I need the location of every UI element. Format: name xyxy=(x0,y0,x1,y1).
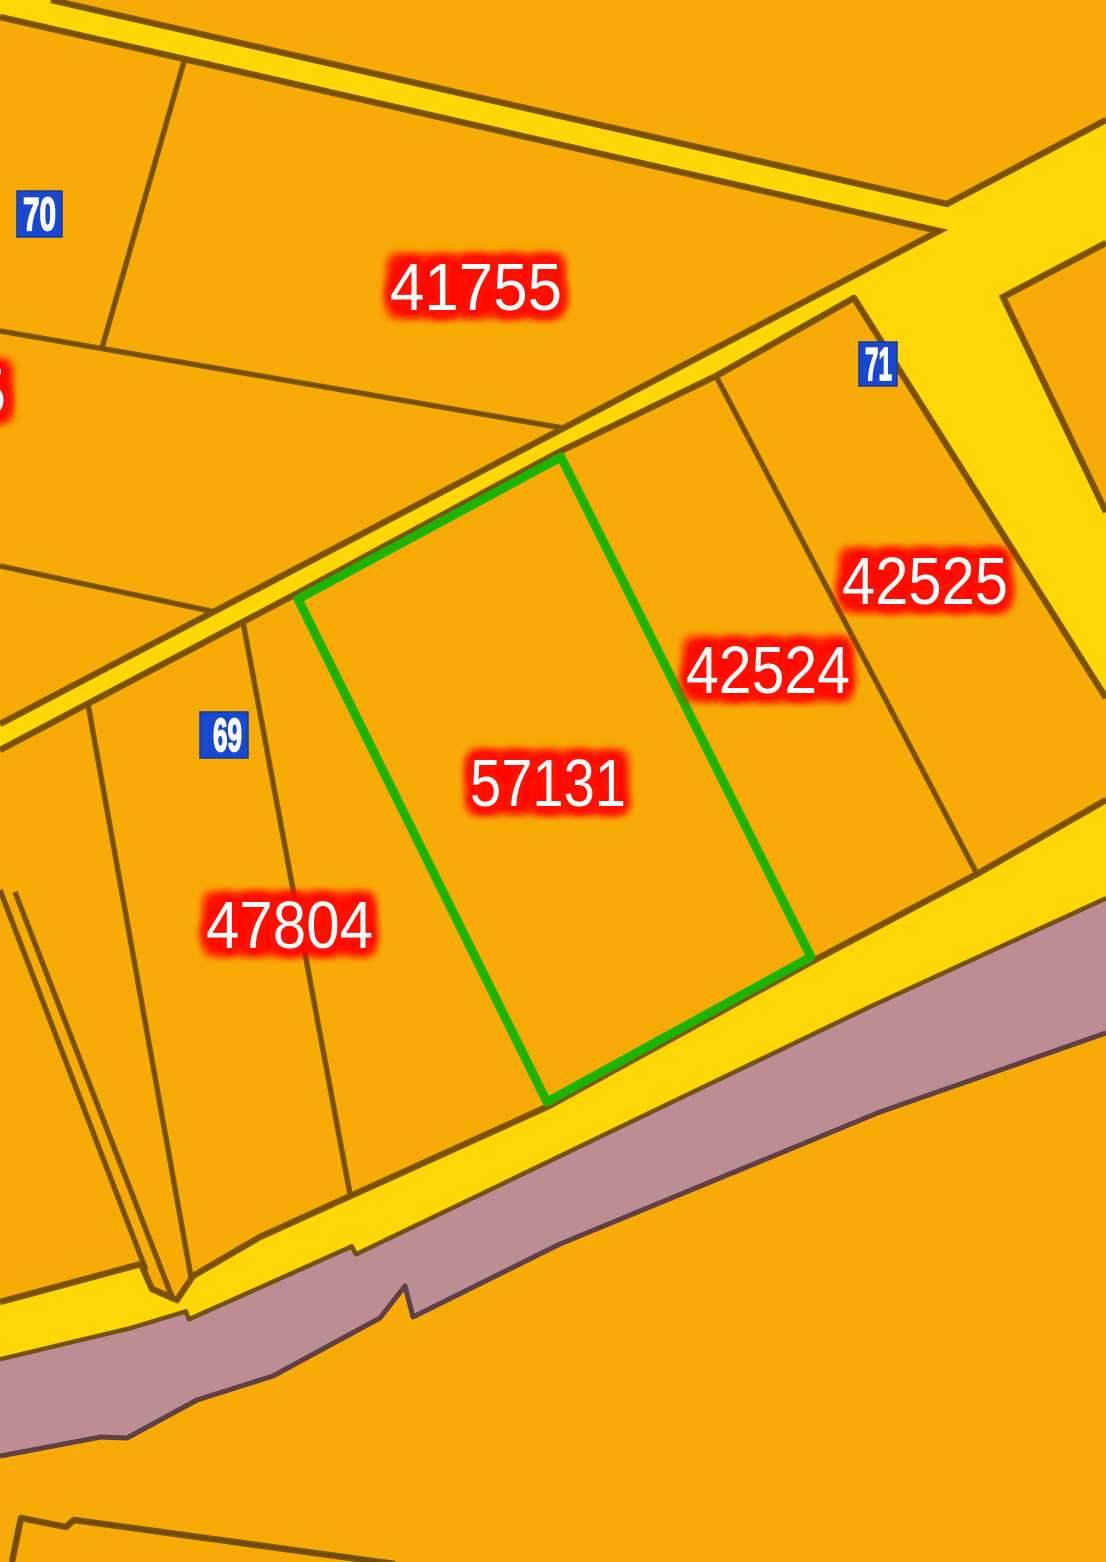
svg-text:57131: 57131 xyxy=(470,746,626,821)
svg-text:71: 71 xyxy=(865,338,892,390)
svg-text:5: 5 xyxy=(0,355,6,430)
svg-text:70: 70 xyxy=(23,188,56,240)
svg-text:69: 69 xyxy=(213,709,242,761)
svg-text:42525: 42525 xyxy=(842,544,1008,619)
svg-text:41755: 41755 xyxy=(390,250,562,325)
svg-text:47804: 47804 xyxy=(206,888,373,963)
svg-text:42524: 42524 xyxy=(686,633,850,708)
